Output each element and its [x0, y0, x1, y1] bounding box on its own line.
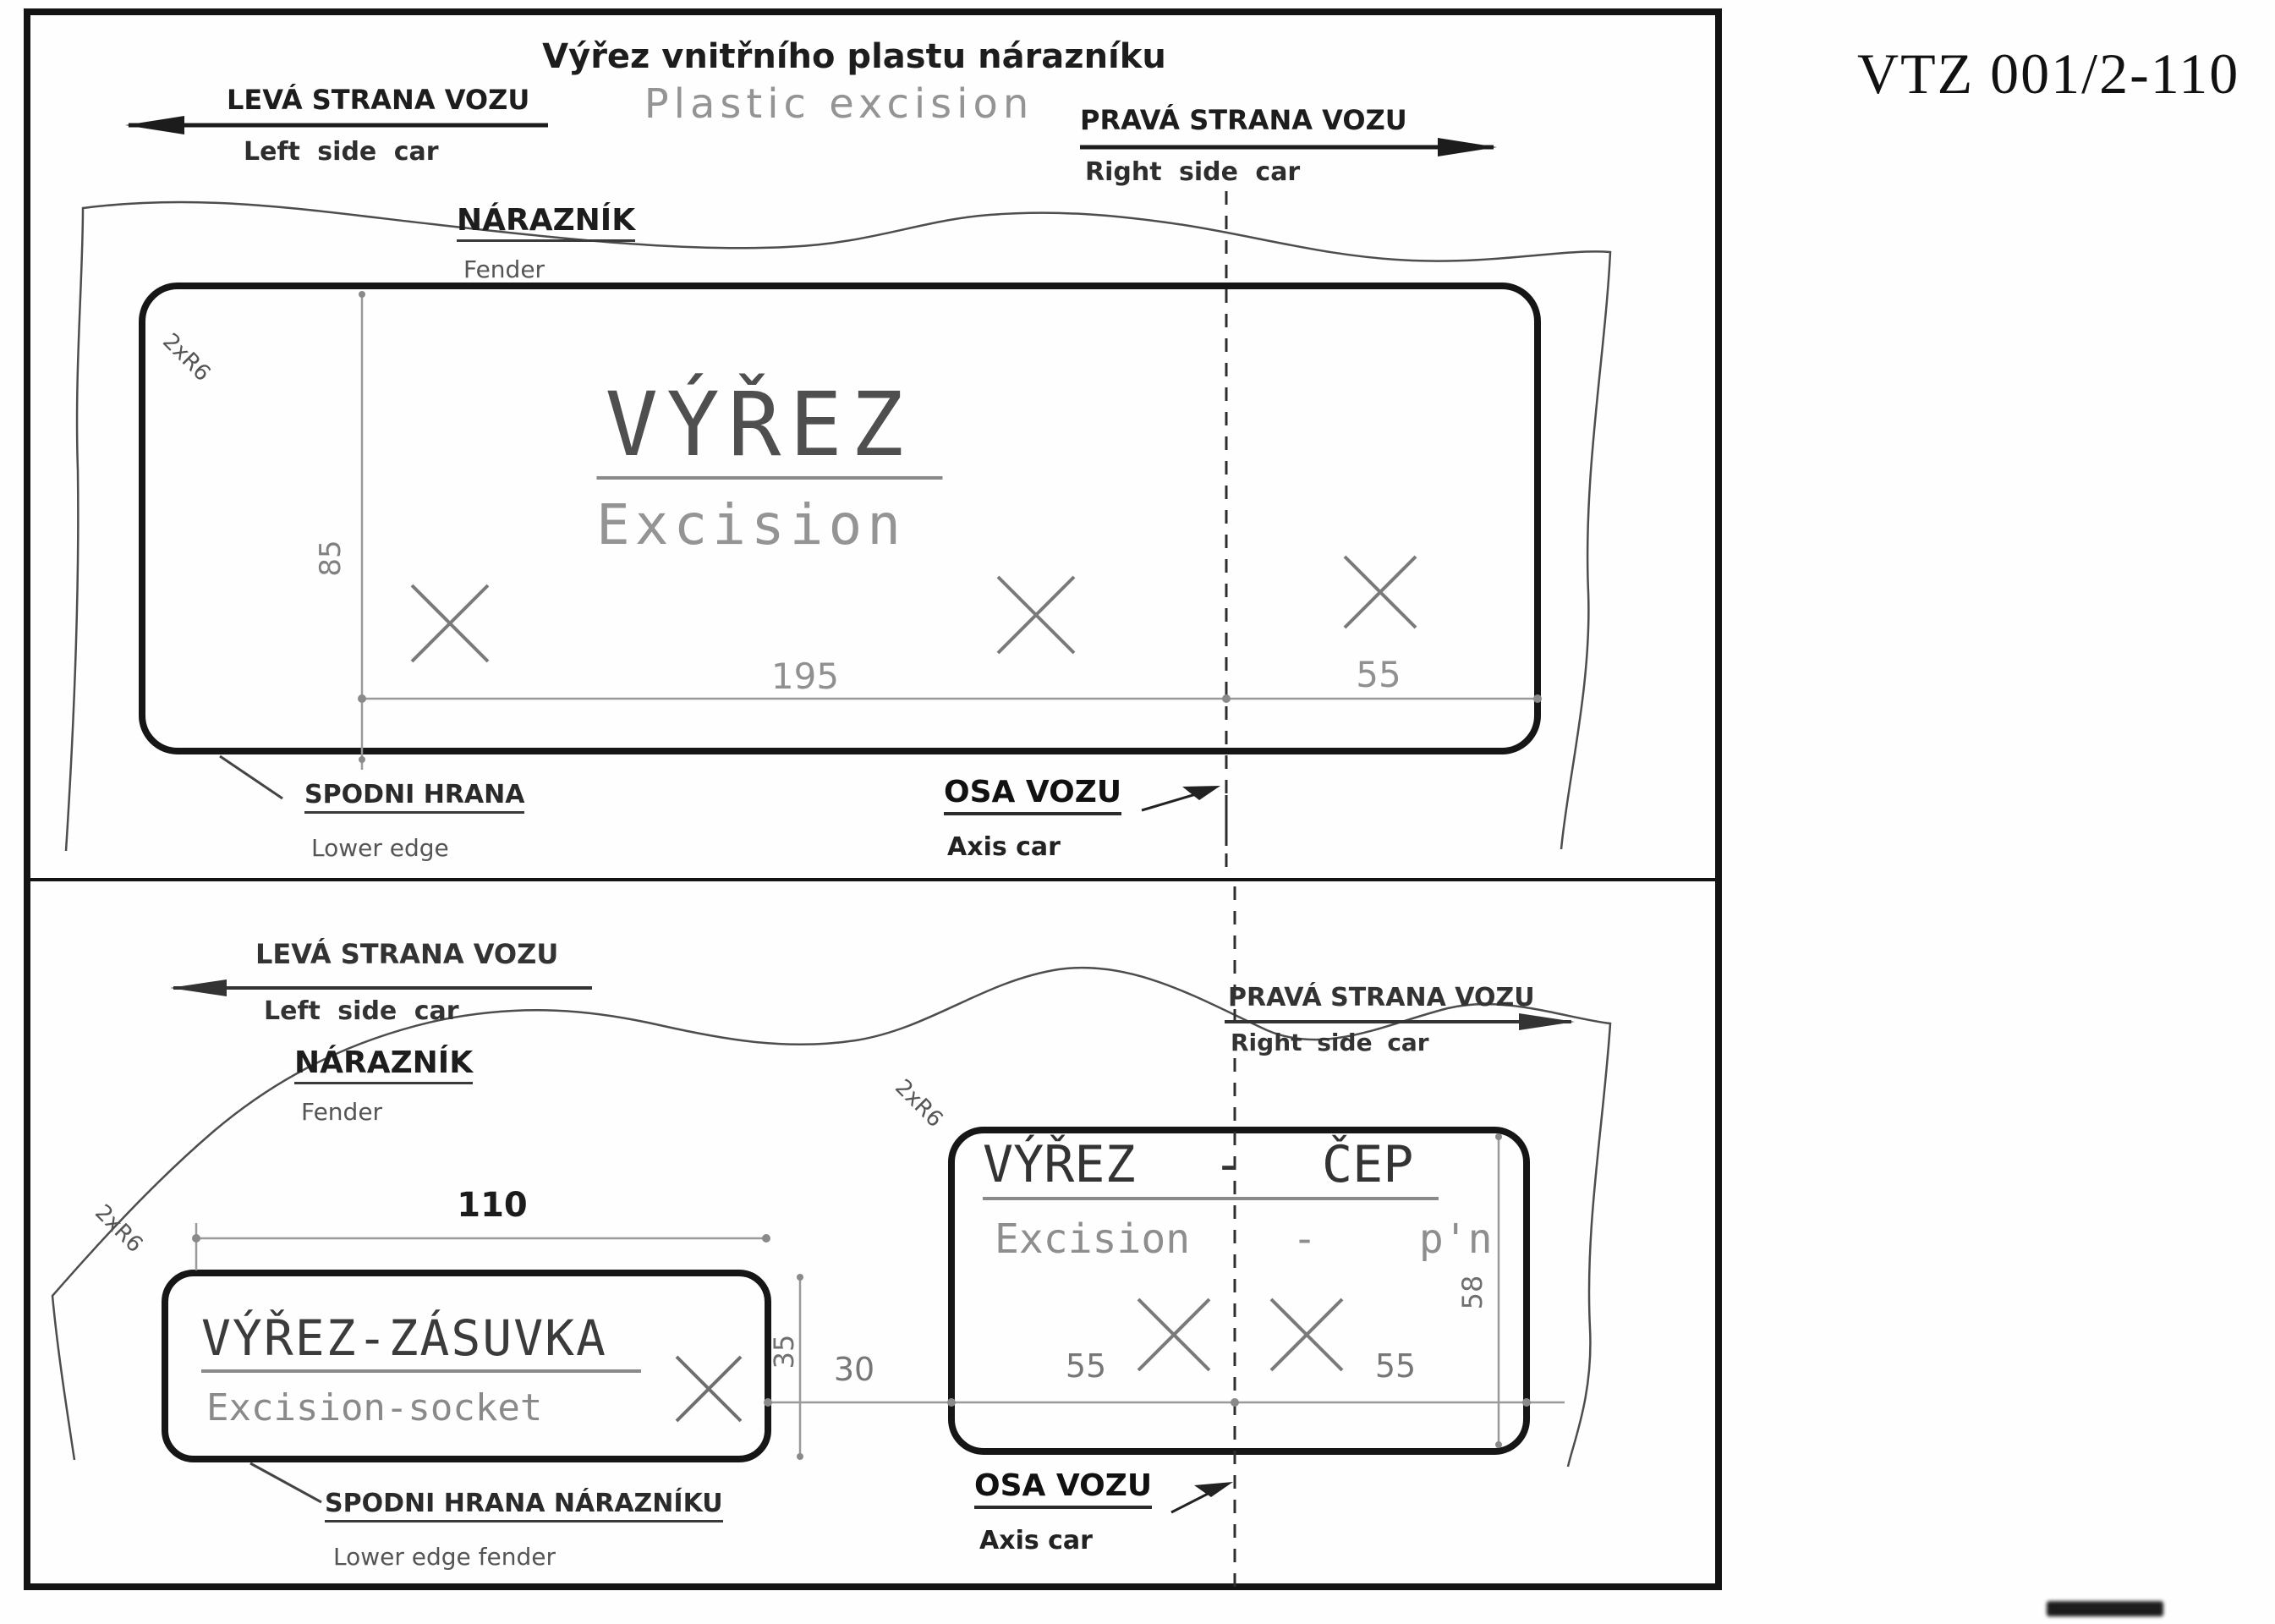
leader-axis-bottom: [1171, 1482, 1233, 1512]
dim-195: 195: [771, 658, 839, 695]
dim-110: 110: [457, 1188, 528, 1223]
dim-35: 35: [770, 1335, 799, 1369]
bottom-axis-label-cz: OSA VOZU: [974, 1470, 1152, 1509]
pin-excision-label-en: Excision - p'n: [995, 1218, 1493, 1260]
scan-artifact: [2047, 1601, 2163, 1616]
x-mark: [998, 577, 1074, 653]
leader-lower-edge-bottom: [250, 1463, 321, 1502]
dim-58: 58: [1459, 1276, 1488, 1310]
top-excision-label-en: Excision: [596, 496, 906, 554]
dim-tick: [359, 756, 365, 763]
top-fender-label-en: Fender: [463, 257, 545, 282]
leader-lower-edge-top: [220, 756, 282, 798]
dim-55-pin-left: 55: [1066, 1350, 1106, 1384]
bottom-right-side-label-cz: PRAVÁ STRANA VOZU: [1228, 985, 1535, 1012]
dim-30: 30: [834, 1353, 874, 1387]
x-mark: [1138, 1299, 1209, 1370]
top-right-side-label-cz: PRAVÁ STRANA VOZU: [1080, 107, 1407, 135]
pin-excision-label-cz: VÝŘEZ - ČEP: [983, 1138, 1439, 1200]
bottom-fender-label-en: Fender: [301, 1100, 382, 1124]
dim-55-pin-right: 55: [1375, 1350, 1416, 1384]
bottom-axis-label-en: Axis car: [979, 1528, 1093, 1555]
top-axis-label-cz: OSA VOZU: [944, 776, 1121, 815]
dim-tick: [359, 291, 365, 298]
x-mark: [1271, 1299, 1342, 1370]
dim-tick: [1533, 694, 1542, 703]
dim-line-30-55-55: [764, 1398, 1565, 1407]
sheet-title-en: Plastic excision: [644, 83, 1034, 125]
left-direction-arrow: [125, 116, 548, 134]
sheet-title-cz: Výřez vnitřního plastu nárazníku: [542, 39, 1166, 74]
dim-55-top: 55: [1356, 656, 1401, 694]
bottom-fender-label-cz: NÁRAZNÍK: [294, 1047, 473, 1084]
dim-line-58: [1495, 1133, 1502, 1448]
top-axis-label-en: Axis car: [947, 834, 1061, 861]
leader-axis-top: [1142, 786, 1226, 846]
right-direction-arrow: [1225, 1013, 1575, 1030]
x-mark: [412, 585, 488, 661]
top-excision-label-cz: VÝŘEZ: [596, 379, 942, 480]
top-lower-edge-label-en: Lower edge: [311, 836, 449, 860]
x-mark: [677, 1357, 741, 1421]
dim-tick: [1222, 694, 1231, 703]
top-fender-label-cz: NÁRAZNÍK: [457, 205, 635, 242]
bottom-lower-edge-label-cz: SPODNI HRANA NÁRAZNÍKU: [325, 1490, 723, 1522]
dim-85: 85: [316, 540, 347, 576]
technical-drawing-sheet: VTZ 001/2-110 Výřez vnitřního plastu nár…: [0, 0, 2275, 1624]
bottom-right-side-label-en: Right side car: [1231, 1030, 1429, 1055]
socket-excision-label-en: Excision-socket: [206, 1389, 542, 1428]
socket-excision-label-cz: VÝŘEZ-ZÁSUVKA: [201, 1313, 641, 1373]
top-left-side-label-cz: LEVÁ STRANA VOZU: [227, 86, 529, 115]
dim-line-110: [192, 1223, 770, 1270]
top-right-side-label-en: Right side car: [1085, 159, 1300, 186]
bottom-left-side-label-cz: LEVÁ STRANA VOZU: [255, 941, 558, 969]
bottom-left-side-label-en: Left side car: [264, 998, 459, 1025]
dim-tick: [358, 694, 366, 703]
left-direction-arrow: [170, 979, 592, 996]
bottom-lower-edge-label-en: Lower edge fender: [333, 1544, 556, 1569]
top-left-side-label-en: Left side car: [244, 139, 439, 166]
doc-number: VTZ 001/2-110: [1857, 44, 2239, 104]
right-direction-arrow: [1080, 138, 1497, 156]
x-mark: [1345, 557, 1416, 628]
top-lower-edge-label-cz: SPODNI HRANA: [304, 782, 524, 814]
